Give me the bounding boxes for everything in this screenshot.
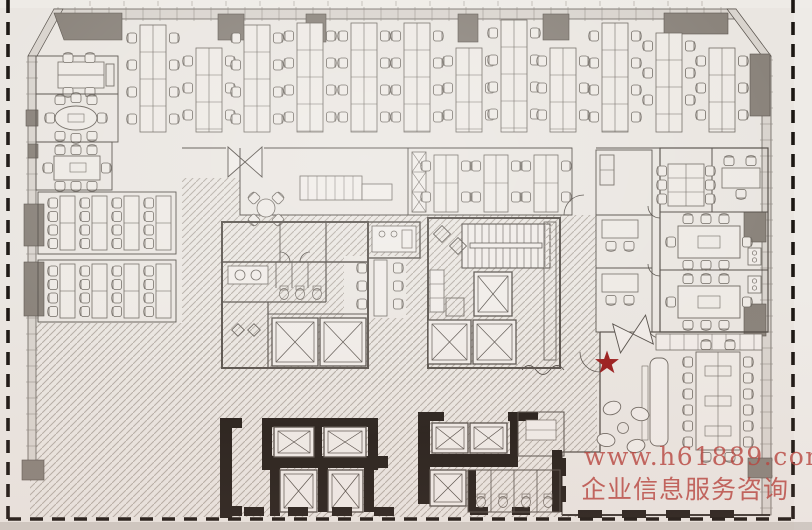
photo-tone-overlay (0, 0, 812, 530)
floor-plan-drawing (0, 0, 812, 530)
floor-plan-photo: www.h61889.com 企业信息服务咨询 (0, 0, 812, 530)
photo-warm-tint (0, 0, 812, 530)
